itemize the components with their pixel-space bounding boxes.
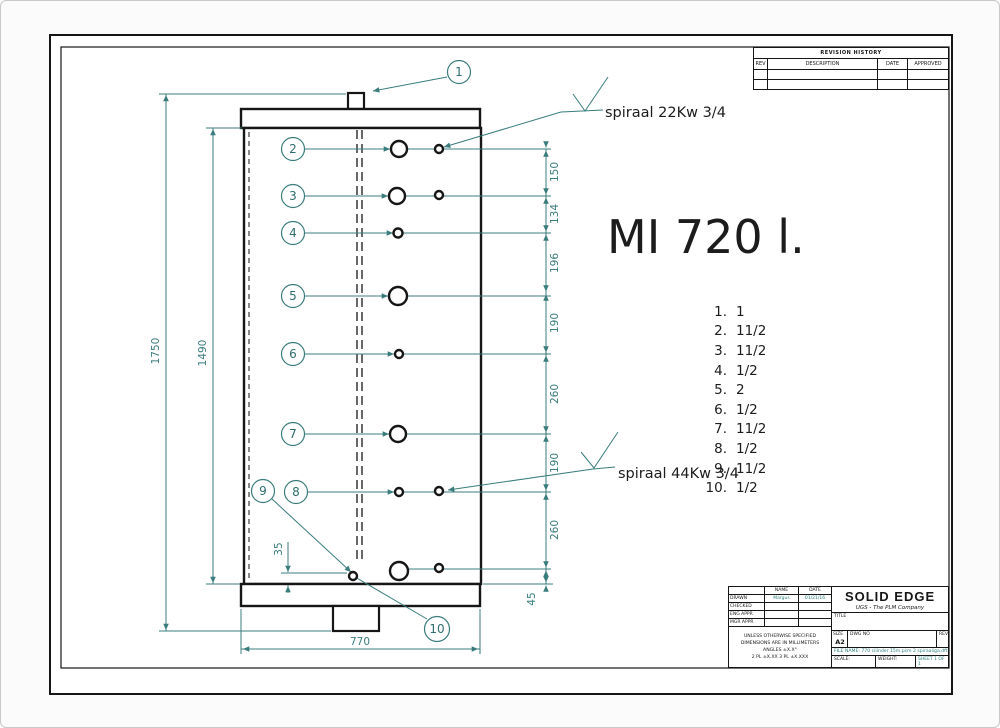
list-item: 1.1 [701, 302, 766, 322]
hole-drain-small [349, 572, 357, 580]
description-col-header: DESCRIPTION [768, 59, 878, 69]
balloon-3: 3 [282, 185, 305, 208]
balloon-6: 6 [282, 343, 305, 366]
list-index: 3. [701, 343, 727, 359]
tolerance-line-2: DIMENSIONS ARE IN MILLIMETERS [741, 640, 819, 647]
hole-4 [394, 229, 403, 238]
balloon-8: 8 [285, 481, 308, 504]
list-index: 7. [701, 421, 727, 437]
balloon-5-label: 5 [289, 289, 297, 303]
date-col-header: DATE [878, 59, 908, 69]
balloon-1-label: 1 [455, 65, 463, 79]
balloon-1: 1 [448, 61, 471, 84]
bottom-cap [241, 584, 480, 606]
dwg-no-cell: DWG NO [848, 631, 937, 647]
rev-label: REV [939, 632, 948, 637]
weld-symbol-top-base [561, 110, 603, 112]
balloon-6-label: 6 [289, 347, 297, 361]
list-value: 1/2 [736, 480, 758, 496]
balloon-10-label: 10 [429, 622, 444, 636]
top-cap [241, 109, 480, 128]
date-col-header2: DATE [799, 587, 831, 594]
chain-label-45: 45 [526, 592, 538, 605]
engappr-label: ENG APPR [729, 611, 765, 618]
hole-3 [389, 188, 405, 204]
weld-symbol-bottom-check [581, 432, 618, 468]
inner-frame [61, 47, 949, 668]
dim-1750-label: 1750 [150, 338, 162, 365]
tolerance-line-1: UNLESS OTHERWISE SPECIFIED [744, 633, 816, 640]
list-value: 11/2 [736, 343, 766, 359]
list-item: 8.1/2 [701, 439, 766, 459]
list-item: 6.1/2 [701, 400, 766, 420]
list-index: 6. [701, 402, 727, 418]
logo-subtitle: UGS - The PLM Company [856, 605, 924, 611]
balloon-7: 7 [282, 423, 305, 446]
revision-history-table: REVISION HISTORY REV DESCRIPTION DATE AP… [753, 47, 949, 90]
balloon-3-label: 3 [289, 189, 297, 203]
list-index: 5. [701, 382, 727, 398]
leader-balloon-1 [373, 77, 447, 91]
balloon-10: 10 [425, 617, 450, 642]
list-item: 3.11/2 [701, 341, 766, 361]
chain-label-150: 150 [549, 162, 561, 182]
title-label: TITLE [834, 614, 846, 619]
list-item: 7.11/2 [701, 420, 766, 440]
list-value: 1/2 [736, 402, 758, 418]
mgrappr-label: MGR APPR [729, 619, 765, 626]
connection-size-list: 1.1 2.11/2 3.11/2 4.1/2 5.2 6.1/2 7.11/2… [701, 302, 766, 498]
chain-label-190b: 190 [549, 453, 561, 473]
balloon-2-label: 2 [289, 142, 297, 156]
list-index: 8. [701, 441, 727, 457]
cad-sheet-view: 1 2 3 4 5 6 7 8 9 10 1750 1490 770 35 15… [0, 0, 1000, 728]
dim-35-label: 35 [273, 542, 285, 555]
balloon-5: 5 [282, 285, 305, 308]
hole-7 [390, 426, 406, 442]
hole-3-small [435, 191, 443, 199]
title-block-left: NAME DATE DRAWN Margus 01/21/16 CHECKED … [729, 587, 832, 667]
hole-5 [389, 287, 407, 305]
drawn-label: DRAWN [729, 595, 765, 602]
list-value: 2 [736, 382, 745, 398]
size-label: SIZE [833, 632, 847, 637]
chain-label-260a: 260 [549, 384, 561, 404]
balloon-8-label: 8 [292, 485, 300, 499]
hole-8 [395, 488, 403, 496]
balloon-4-label: 4 [289, 226, 297, 240]
list-value: 11/2 [736, 323, 766, 339]
size-value: A2 [835, 638, 845, 646]
weld-symbol-top-check [573, 77, 608, 111]
product-title: MI 720 l. [607, 210, 805, 264]
checked-label: CHECKED [729, 603, 765, 610]
list-value: 11/2 [736, 421, 766, 437]
hole-8-small [435, 487, 443, 495]
list-value: 1/2 [736, 441, 758, 457]
hole-2-small [435, 145, 443, 153]
list-index: 2. [701, 323, 727, 339]
list-index: 9. [701, 461, 727, 477]
tolerance-line-3: ANGLES ±X.X° [763, 647, 797, 654]
chain-label-190a: 190 [549, 313, 561, 333]
top-nozzle [348, 93, 364, 109]
scale-row: SCALE: WEIGHT: SHEET 1 OF 1 [832, 656, 948, 667]
weld-symbol-bottom-base [593, 467, 615, 469]
balloon-2: 2 [282, 138, 305, 161]
bottom-foot [333, 606, 379, 631]
revision-history-title: REVISION HISTORY [754, 48, 948, 59]
list-item: 2.11/2 [701, 322, 766, 342]
approved-col-header: APPROVED [908, 59, 948, 69]
drawn-name: Margus [765, 595, 799, 602]
dwg-no-label: DWG NO [850, 632, 870, 637]
revision-empty-row [754, 70, 948, 80]
title-block: NAME DATE DRAWN Margus 01/21/16 CHECKED … [728, 586, 949, 668]
hole-2 [391, 141, 407, 157]
rev-col-header: REV [754, 59, 768, 69]
solid-edge-logo: SOLID EDGE UGS - The PLM Company [832, 587, 948, 613]
list-item: 10.1/2 [701, 478, 766, 498]
title-block-right: SOLID EDGE UGS - The PLM Company TITLE S… [832, 587, 948, 667]
rev-cell: REV [937, 631, 948, 647]
scale-label: SCALE: [832, 656, 876, 667]
balloon-9: 9 [252, 480, 275, 503]
list-value: 11/2 [736, 461, 766, 477]
tolerance-note: UNLESS OTHERWISE SPECIFIED DIMENSIONS AR… [729, 627, 831, 667]
hole-bottom-small [435, 564, 443, 572]
tolerance-line-4: 2 PL ±X.XX 3 PL ±X.XXX [752, 654, 808, 661]
file-name-cell: FILE NAME: 770 cilinder 15m.psm 2 spiraa… [832, 648, 948, 656]
weight-label: WEIGHT: [876, 656, 916, 667]
sheet-label: SHEET 1 OF 1 [916, 656, 948, 667]
hole-bottom-large [390, 562, 408, 580]
dim-770-label: 770 [350, 636, 370, 648]
list-item: 5.2 [701, 380, 766, 400]
size-cell: SIZEA2 [832, 631, 848, 647]
spiral-top-label: spiraal 22Kw 3/4 [605, 105, 726, 121]
list-index: 1. [701, 304, 727, 320]
balloon-7-label: 7 [289, 427, 297, 441]
list-item: 9.11/2 [701, 459, 766, 479]
chain-label-196: 196 [549, 253, 561, 273]
revision-stub-row [754, 80, 948, 89]
list-index: 4. [701, 363, 727, 379]
list-value: 1/2 [736, 363, 758, 379]
logo-text: SOLID EDGE [845, 589, 935, 604]
chain-label-260b: 260 [549, 520, 561, 540]
drawn-date: 01/21/16 [799, 595, 831, 602]
balloon-9-label: 9 [259, 484, 267, 498]
balloon-4: 4 [282, 222, 305, 245]
name-col-header: NAME [765, 587, 799, 594]
list-value: 1 [736, 304, 745, 320]
list-item: 4.1/2 [701, 361, 766, 381]
list-index: 10. [701, 480, 727, 496]
hole-6 [395, 350, 403, 358]
dim-1490-label: 1490 [197, 340, 209, 367]
chain-label-134: 134 [549, 204, 561, 224]
title-cell: TITLE [832, 613, 948, 631]
